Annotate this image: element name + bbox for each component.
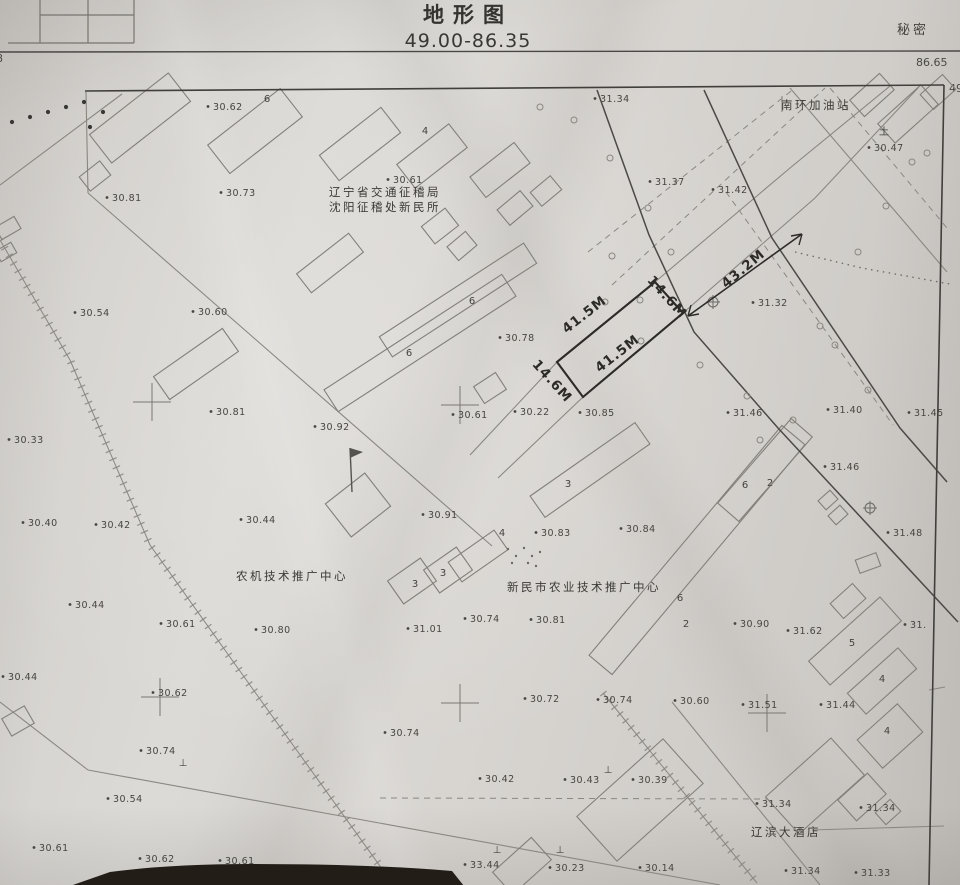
table-shadow-bottom-edge [70,864,464,885]
spot-elevation-value: 30.61 [458,410,488,421]
building-outline [530,423,650,518]
spot-elevation-value: 30.61 [39,843,69,854]
building-outline [474,373,507,404]
building-outline [718,419,813,522]
spot-elevation-value: 30.62 [145,854,175,865]
spot-elevation-dot [824,465,827,468]
spot-elevation-value: 30.85 [585,408,615,419]
building-floor-count: 3 [412,579,418,590]
survey-symbol: ⊥ [493,845,502,856]
spot-elevation-value: 30.78 [505,333,535,344]
boundary-dot [101,110,105,114]
pole-circle [607,155,613,161]
building-floor-count: 6 [742,480,748,491]
topographic-map-canvas: 地形图 49.00-86.35 秘密 86.65 49 8 41.5M41.5M… [0,0,960,885]
spot-elevation-dot [855,871,858,874]
spot-elevation-dot [742,703,745,706]
building-floor-count: 3 [565,479,571,490]
courtyard-dot [523,547,525,549]
building-outline [447,231,477,260]
spot-elevation-dot [106,196,109,199]
spot-elevation-dot [639,866,642,869]
pole-circle [609,253,615,259]
spot-elevation-value: 31.44 [826,700,856,711]
spot-elevation-value: 30.92 [320,422,350,433]
pole-circle [832,342,838,348]
pole-circle [668,249,674,255]
photographed-topographic-map: { "header": { "title": "地形图", "sheet_ran… [0,0,960,885]
spot-elevation-value: 30.80 [261,625,291,636]
handwritten-dimension: 43.2M [718,246,768,292]
spot-elevation-value: 30.60 [680,696,710,707]
spot-elevation-value: 30.62 [213,102,243,113]
spot-elevation-dot [387,178,390,181]
handwritten-dimension: 14.6M [644,273,691,322]
spot-elevation-dot [524,697,527,700]
spot-elevation-value: 30.74 [603,695,633,706]
dashed-road-line [588,88,795,252]
building-floor-count: 3 [440,568,446,579]
road-line [88,193,492,546]
spot-elevation-dot [887,531,890,534]
spot-elevation-dot [579,411,582,414]
spot-elevation-dot [597,698,600,701]
spot-elevation-dot [514,410,517,413]
survey-symbol: ⊥ [604,765,613,776]
courtyard-dot [531,555,533,557]
buildings-layer [0,73,956,885]
survey-symbol: 土 [879,125,889,138]
place-name-label: 新民市农业技术推广中心 [507,580,661,594]
building-outline [530,176,561,207]
dashed-road-line [726,192,893,425]
spot-elevation-dot [255,628,258,631]
fence-line [0,240,390,880]
building-outline [0,216,21,239]
place-name-label: 沈阳征稽处新民所 [329,200,441,214]
road-line [790,88,947,272]
spot-elevation-dot [564,778,567,781]
building-outline [154,328,239,399]
spot-elevation-value: 31.62 [793,626,823,637]
spot-elevation-value: 30.83 [541,528,571,539]
spot-elevation-dot [530,618,533,621]
spot-elevation-dot [22,521,25,524]
courtyard-dot [515,555,517,557]
pole-circle [909,159,915,165]
spot-elevation-value: 30.91 [428,510,458,521]
building-outline [297,233,364,293]
spot-elevation-value: 30.40 [28,518,58,529]
classification-mark: 秘密 [897,22,929,38]
pole-circle [924,150,930,156]
spot-elevation-value: 31.42 [718,185,748,196]
spot-elevation-value: 30.22 [520,407,550,418]
spot-elevation-value: 30.47 [874,143,904,154]
spot-elevation-dot [594,97,597,100]
main-road-edge [597,90,958,622]
spot-elevation-dot [787,629,790,632]
margin-coordinate-top: 86.65 [916,56,948,69]
spot-elevation-value: 30.44 [246,515,276,526]
building-outline [497,191,533,226]
spot-elevation-dot [220,191,223,194]
spot-elevation-value: 30.44 [75,600,105,611]
spot-elevation-dot [620,527,623,530]
spot-elevation-dot [464,863,467,866]
spot-elevation-value: 31.48 [893,528,923,539]
main-road-edge [704,90,947,482]
courtyard-dot [527,562,529,564]
spot-elevation-dot [210,410,213,413]
sheet-header: 地形图 49.00-86.35 秘密 86.65 49 8 [0,0,960,95]
dotted-path [795,252,950,284]
building-outline [828,505,848,525]
spot-elevation-dot [8,438,11,441]
spot-elevation-dot [549,866,552,869]
spot-elevation-dot [314,425,317,428]
spot-elevation-value: 31.46 [830,462,860,473]
spot-elevation-dot [219,859,222,862]
building-outline [493,837,552,885]
spot-elevation-value: 31.34 [762,799,792,810]
building-floor-count: 4 [422,126,428,137]
spot-elevation-dot [785,869,788,872]
building-outline [818,490,838,510]
courtyard-dot [507,548,509,550]
spot-elevation-dot [712,188,715,191]
spot-elevation-dot [384,731,387,734]
spot-elevation-dot [207,105,210,108]
survey-symbol: ⊥ [179,758,188,769]
spot-elevation-dot [820,703,823,706]
spot-elevation-value: 30.81 [112,193,142,204]
handwritten-dimension: 14.6M [529,357,576,406]
road-line [498,88,918,478]
spot-elevation-value: 30.74 [146,746,176,757]
spot-elevation-value: 31.40 [833,405,863,416]
boundary-dot [46,110,50,114]
spot-elevation-value: 31.34 [791,866,821,877]
spot-elevation-value: 30.73 [226,188,256,199]
header-divider-line [0,51,960,52]
building-floor-count: 4 [884,726,890,737]
spot-elevation-dot [2,675,5,678]
spot-elevation-value: 30.23 [555,863,585,874]
spot-elevation-dot [152,691,155,694]
survey-symbol: ⊥ [556,845,565,856]
spot-elevation-dot [240,518,243,521]
map-title: 地形图 [423,3,513,27]
sheet-range: 49.00-86.35 [405,30,532,52]
spot-elevation-dot [407,627,410,630]
main-roads-layer [85,85,958,885]
spot-elevation-value: 30.84 [626,524,656,535]
spot-elevation-dot [160,622,163,625]
spot-elevation-value: 31.45 [914,408,944,419]
building-outline [766,738,865,834]
spot-elevation-dot [499,336,502,339]
pole-circle [883,203,889,209]
spot-elevation-dot [107,797,110,800]
building-floor-count: 2 [767,478,773,489]
building-outline [589,425,805,674]
building-outline [577,739,703,861]
building-floor-count: 6 [264,94,270,105]
pole-circle [637,297,643,303]
map-neatline [929,85,944,885]
building-floor-count: 5 [849,638,855,649]
spot-elevation-value: 30.42 [485,774,515,785]
spot-elevation-dot [479,777,482,780]
spot-elevation-value: 30.54 [113,794,143,805]
spot-elevation-dot [904,623,907,626]
building-outline [855,553,880,574]
road-line [812,826,944,830]
spot-elevation-value: 31.51 [748,700,778,711]
building-outline [325,473,390,537]
dashed-road-line [380,798,768,799]
spot-elevation-value: 30.74 [390,728,420,739]
margin-coordinate-left: 8 [0,52,3,65]
spot-elevation-dot [95,523,98,526]
fence-line [603,693,757,883]
spot-elevation-dot [464,617,467,620]
pole-circle [697,362,703,368]
spot-elevation-value: 30.60 [198,307,228,318]
map-neatline [85,85,944,91]
spot-elevation-dot [74,311,77,314]
spot-elevation-dot [908,411,911,414]
pole-circle [817,323,823,329]
spot-elevation-value: 30.81 [216,407,246,418]
spot-elevation-dot [868,146,871,149]
building-floor-count: 6 [677,593,683,604]
pole-circle [537,104,543,110]
spot-elevation-value: 30.42 [101,520,131,531]
spot-elevation-value: 30.54 [80,308,110,319]
place-name-label: 辽宁省交通征稽局 [329,185,441,199]
spot-elevation-value: 31.32 [758,298,788,309]
spot-elevation-value: 30.61 [166,619,196,630]
boundary-dot [10,120,14,124]
spot-elevation-value: 31.46 [733,408,763,419]
spot-elevation-dot [756,802,759,805]
spot-elevation-dot [139,857,142,860]
boundary-dot [88,125,92,129]
hand-drawn-parcel-layer: 41.5M41.5M14.6M14.6M43.2M [529,234,802,406]
building-floor-count: 6 [469,296,475,307]
place-name-label: 农机技术推广中心 [236,569,348,583]
spot-elevation-dot [827,408,830,411]
building-floor-count: 6 [406,348,412,359]
building-floor-count: 2 [683,619,689,630]
spot-elevation-dot [727,411,730,414]
road-line [0,94,122,185]
spot-elevation-dot [535,531,538,534]
place-name-label: 南环加油站 [781,98,851,112]
spot-elevation-dot [674,699,677,702]
road-line [86,92,88,193]
spot-elevation-value: 30.74 [470,614,500,625]
spot-elevation-value: 31. [910,620,927,631]
boundary-dot [28,115,32,119]
building-outline [2,706,35,736]
handwritten-dimension: 41.5M [559,293,610,337]
spot-elevation-value: 30.62 [158,688,188,699]
building-floor-count: 4 [499,528,505,539]
spot-elevation-value: 30.44 [8,672,38,683]
spot-elevation-dot [69,603,72,606]
spot-elevation-value: 30.14 [645,863,675,874]
spot-elevation-value: 31.33 [861,868,891,879]
building-outline [319,107,400,180]
spot-elevation-dot [734,622,737,625]
title-block-table [8,0,134,43]
pole-circle [757,437,763,443]
spot-elevation-value: 31.34 [866,803,896,814]
spot-elevation-value: 30.43 [570,775,600,786]
building-outline [79,161,111,191]
pole-circle [645,205,651,211]
spot-elevation-dot [140,749,143,752]
place-name-label: 辽滨大酒店 [751,825,821,839]
spot-elevation-value: 30.81 [536,615,566,626]
building-floor-count: 4 [879,674,885,685]
building-outline [850,73,894,116]
spot-elevation-value: 31.01 [413,624,443,635]
light-linework-layer [0,86,950,885]
courtyard-dot [539,551,541,553]
spot-elevation-dot [192,310,195,313]
building-outline [90,73,191,163]
map-text-layer: 31.3430.6230.4730.8130.7330.6131.3731.42… [2,94,944,879]
spot-elevation-dot [752,301,755,304]
fence-hatching [0,240,390,880]
spot-elevation-dot [33,846,36,849]
courtyard-dot [511,562,513,564]
building-outline [830,584,866,619]
road-line [929,687,945,690]
spot-elevation-dot [452,413,455,416]
spot-elevation-value: 30.33 [14,435,44,446]
building-outline [470,143,530,198]
road-line [672,702,820,885]
spot-elevation-dot [422,513,425,516]
spot-elevation-dot [632,778,635,781]
road-line [470,86,890,455]
spot-elevation-value: 31.37 [655,177,685,188]
pole-circle [571,117,577,123]
spot-elevation-dot [860,806,863,809]
spot-elevation-value: 30.39 [638,775,668,786]
flag-icon [350,448,363,458]
spot-elevation-value: 33.44 [470,860,500,871]
spot-elevation-dot [649,180,652,183]
boundary-dot [82,100,86,104]
spot-elevation-value: 30.90 [740,619,770,630]
pole-circle [855,249,861,255]
spot-elevation-value: 30.72 [530,694,560,705]
building-outline [424,547,473,593]
spot-elevation-value: 31.34 [600,94,630,105]
courtyard-dot [535,565,537,567]
boundary-dot [64,105,68,109]
fence-hatch-layer [0,240,757,883]
